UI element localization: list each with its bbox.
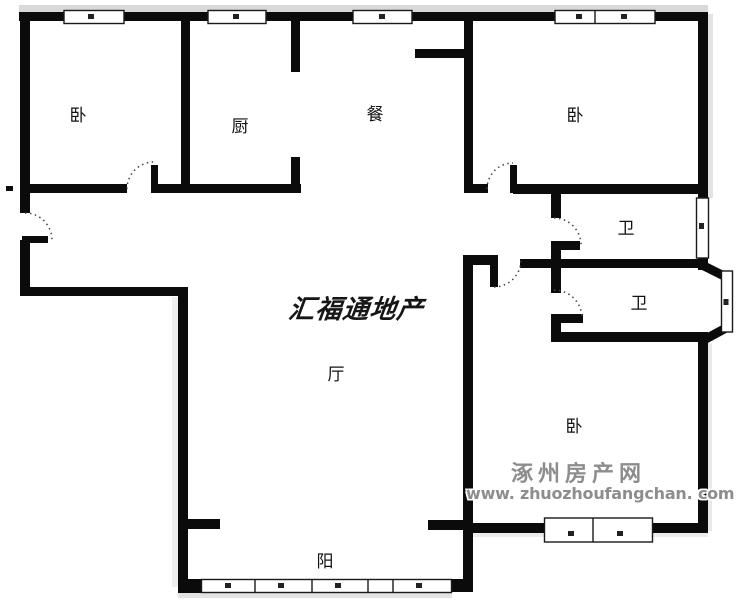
wall-bathroom2-left-vert bbox=[551, 318, 561, 342]
wall-flue-stub bbox=[415, 49, 470, 58]
shade-left-living bbox=[172, 297, 178, 587]
wall-bathrooms-left-seg2 bbox=[551, 250, 561, 293]
wall-right-exterior-lower bbox=[698, 336, 708, 533]
hall-door-leaf bbox=[490, 255, 498, 287]
wall-living-left bbox=[178, 287, 188, 593]
room-label-dining: 餐 bbox=[367, 105, 384, 125]
room-label-living-room: 厅 bbox=[328, 365, 345, 385]
entry-door-arc bbox=[25, 213, 52, 240]
room-label-bedroom-top-left: 卧 bbox=[70, 106, 87, 126]
wall-bathroom1-bottom bbox=[520, 259, 708, 268]
window-bedroom2-top bbox=[555, 11, 655, 24]
floorplan-page: 卧 厨 餐 卧 卫 卫 厅 卧 阳 汇福通地产 涿州房产网 www. zhuoz… bbox=[0, 0, 740, 600]
shade-below-balcony bbox=[178, 593, 452, 598]
bathroom1-door-arc bbox=[554, 218, 581, 245]
room-label-bedroom-top-right: 卧 bbox=[567, 106, 584, 126]
bedroom2-door-arc bbox=[487, 163, 513, 189]
room-label-balcony: 阳 bbox=[317, 552, 334, 572]
wall-bathrooms-left-seg1 bbox=[551, 188, 561, 218]
room-label-kitchen: 厨 bbox=[232, 117, 249, 137]
room-label-bathroom-upper: 卫 bbox=[618, 219, 635, 239]
wall-bedroom1-bottom bbox=[20, 184, 127, 193]
bathroom2-door-arc bbox=[554, 290, 582, 318]
watermark-site-url: www. zhuozhoufangchan. com bbox=[466, 484, 734, 503]
bedroom1-door-leaf bbox=[151, 165, 158, 193]
room-label-bathroom-lower: 卫 bbox=[631, 294, 648, 314]
window-bedroom3-bottom bbox=[545, 518, 653, 542]
wall-bedroom1-kitchen-divider bbox=[181, 12, 190, 193]
entry-door-leaf bbox=[22, 236, 48, 243]
shade-right-upper bbox=[708, 14, 713, 198]
watermark-agency: 汇福通地产 bbox=[287, 289, 427, 326]
wall-bathroom2-bottom bbox=[551, 332, 708, 342]
wall-balcony-stub-right bbox=[428, 520, 473, 530]
window-bedroom1-top bbox=[64, 11, 124, 24]
wall-left-tick bbox=[6, 186, 13, 191]
window-kitchen-top bbox=[208, 11, 266, 24]
window-bathroom2-bay bbox=[722, 271, 733, 332]
wall-kitchen-right-upper-stub bbox=[291, 12, 300, 72]
wall-step-left bbox=[22, 287, 188, 296]
wall-left-exterior-upper bbox=[20, 12, 30, 213]
room-label-bedroom-bottom-right: 卧 bbox=[566, 417, 583, 437]
window-dining-top bbox=[353, 11, 412, 24]
bedroom1-door-arc bbox=[127, 162, 154, 189]
wall-hall-living-divider bbox=[463, 255, 473, 586]
window-balcony-bottom bbox=[202, 580, 452, 593]
wall-balcony-stub-left bbox=[183, 519, 220, 529]
bathroom1-door-leaf bbox=[551, 241, 580, 250]
window-bathroom1-right bbox=[697, 198, 709, 258]
wall-kitchen-right-lower-stub bbox=[291, 157, 300, 193]
wall-right-exterior-upper bbox=[698, 12, 708, 199]
hall-door-arc bbox=[494, 260, 521, 287]
wall-kitchen-bottom bbox=[157, 184, 301, 193]
wall-dining-divider-foot bbox=[464, 184, 488, 193]
wall-dining-bedroom2-divider bbox=[464, 12, 473, 193]
wall-bedroom2-bottom bbox=[513, 184, 708, 194]
